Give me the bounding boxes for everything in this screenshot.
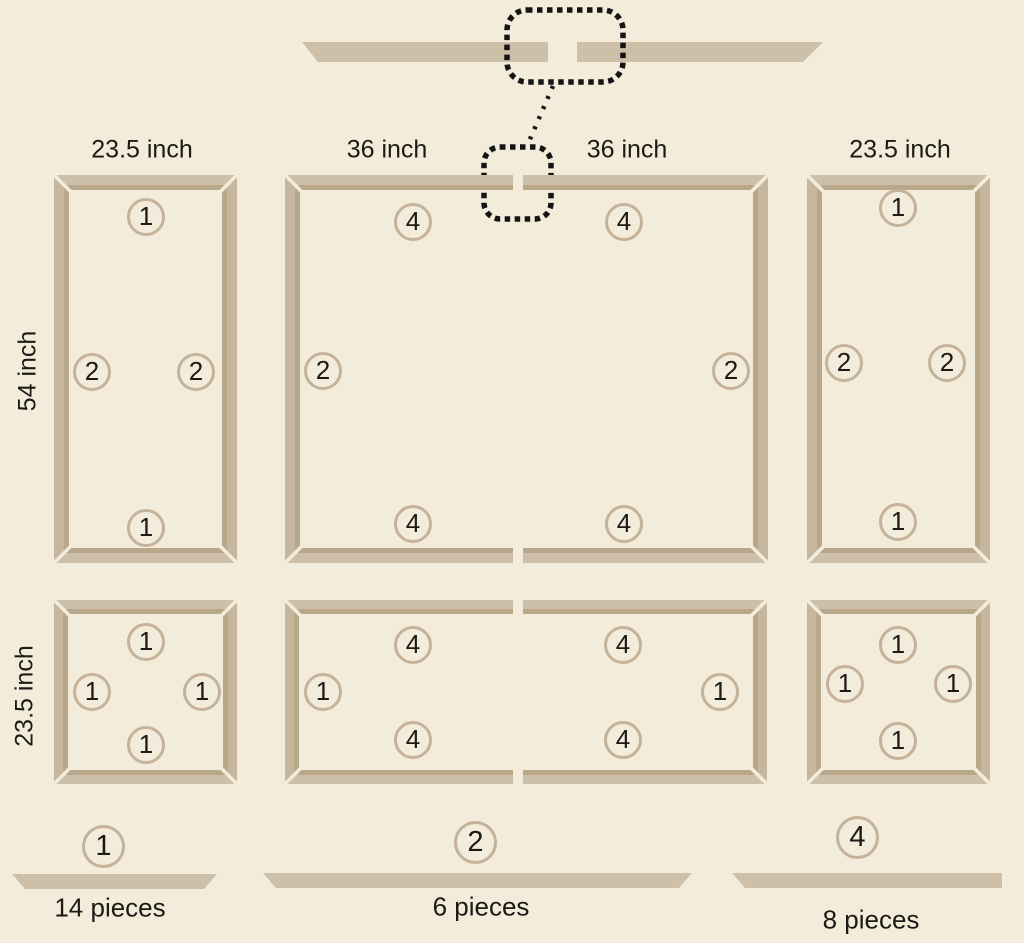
piece-type-badge: 4: [394, 203, 432, 241]
piece-type-badge: 1: [879, 503, 917, 541]
piece-type-badge: 2: [73, 353, 111, 391]
legend-piece-type-badge: 2: [454, 821, 497, 864]
piece-type-badge: 1: [934, 665, 972, 703]
piece-type-badge: 4: [605, 203, 643, 241]
piece-type-badge: 1: [127, 623, 165, 661]
legend-piece-type-badge: 4: [836, 816, 879, 859]
piece-type-badge: 4: [605, 505, 643, 543]
piece-type-badge: 1: [879, 626, 917, 664]
legend-piece-type-badge: 1: [82, 825, 125, 868]
piece-type-badge: 2: [928, 344, 966, 382]
piece-type-badge: 2: [304, 352, 342, 390]
dimension-label: 36 inch: [587, 136, 668, 165]
dimension-label: 54 inch: [14, 331, 43, 412]
piece-type-badge: 1: [826, 665, 864, 703]
piece-count-label: 8 pieces: [823, 905, 920, 936]
dimension-label: 23.5 inch: [91, 136, 192, 165]
piece-type-badge: 1: [127, 509, 165, 547]
piece-type-badge: 2: [177, 353, 215, 391]
piece-type-badge: 4: [604, 626, 642, 664]
piece-type-badge: 1: [879, 189, 917, 227]
dimension-label: 23.5 inch: [849, 136, 950, 165]
piece-type-badge: 4: [394, 505, 432, 543]
piece-type-badge: 1: [73, 673, 111, 711]
dimension-label: 36 inch: [347, 136, 428, 165]
piece-type-badge: 4: [394, 626, 432, 664]
piece-count-label: 14 pieces: [54, 893, 165, 924]
piece-type-badge: 2: [825, 344, 863, 382]
piece-type-badge: 1: [127, 726, 165, 764]
piece-type-badge: 1: [183, 673, 221, 711]
cut-diagram: 122144224412211111441144111123.5 inch36 …: [0, 0, 1024, 943]
piece-type-badge: 2: [712, 352, 750, 390]
piece-type-badge: 1: [701, 673, 739, 711]
piece-count-label: 6 pieces: [433, 892, 530, 923]
labels-overlay: 122144224412211111441144111123.5 inch36 …: [0, 0, 1024, 943]
piece-type-badge: 1: [304, 673, 342, 711]
piece-type-badge: 1: [127, 198, 165, 236]
piece-type-badge: 1: [879, 722, 917, 760]
piece-type-badge: 4: [604, 721, 642, 759]
piece-type-badge: 4: [394, 721, 432, 759]
dimension-label: 23.5 inch: [11, 645, 40, 746]
